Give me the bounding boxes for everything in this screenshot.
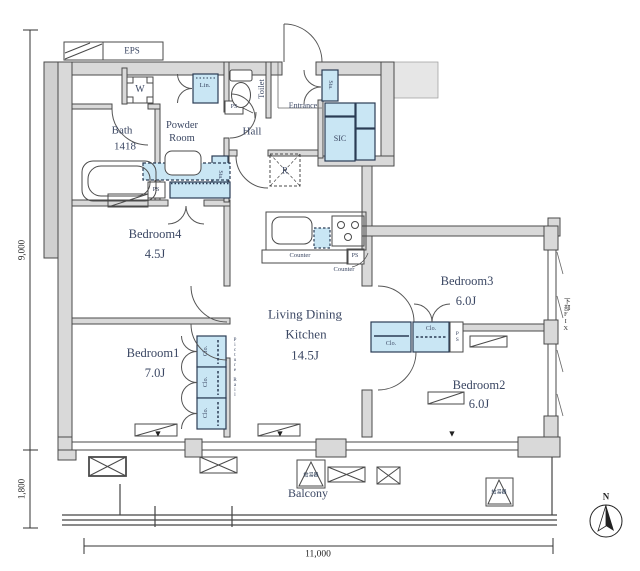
dimension-bottom: 11,000 — [305, 550, 331, 560]
balcony-label: Balcony — [288, 487, 328, 499]
powder-room-label-1: Powder — [166, 121, 198, 132]
hall-label: Hall — [243, 127, 262, 138]
linen-label: Lin. — [200, 83, 211, 90]
ps-label-kitchen: PS — [352, 253, 359, 259]
wash-basin — [165, 151, 201, 175]
closet-label-5: Clo. — [426, 326, 436, 332]
stove — [332, 216, 364, 246]
bedroom3-size: 6.0J — [456, 295, 477, 308]
exterior-alcove — [394, 62, 438, 98]
bath-size-label: 1418 — [114, 142, 136, 153]
floor-plan: EPS W Lin. Toilet PS Entrance Sta. SIC H… — [0, 0, 640, 571]
dishwasher — [314, 228, 330, 248]
fridge-label: R — [282, 167, 288, 176]
closet-label-3: Clo. — [203, 408, 209, 418]
kitchen-sink — [272, 217, 312, 244]
storage-label-powder: Sta. — [217, 170, 223, 179]
ps-label-bedroom3: PS — [454, 331, 460, 343]
vanity-cabinet — [170, 182, 230, 198]
counter-label-2: Counter — [334, 267, 355, 274]
hatch-line — [65, 44, 102, 59]
toilet-label: Toilet — [257, 79, 266, 99]
eps-label: EPS — [124, 47, 140, 56]
washer-label: W — [135, 85, 144, 95]
window-marker-3: ▼ — [448, 430, 457, 439]
dimension-left-main: 9,000 — [18, 240, 27, 260]
closet-label-1: Clo. — [203, 346, 209, 356]
bedroom4-size: 4.5J — [145, 248, 166, 261]
ldk-name-2: Kitchen — [285, 328, 326, 341]
compass — [590, 505, 622, 537]
north-label: N — [603, 493, 610, 502]
bedroom2-size: 6.0J — [469, 398, 490, 411]
sic-cell — [356, 103, 375, 128]
ps-label-toilet: PS — [231, 104, 238, 110]
window-marker-2: ▼ — [276, 430, 285, 439]
window-marker-1: ▼ — [154, 430, 163, 439]
sic-cell — [356, 129, 375, 160]
sic-cell — [325, 103, 355, 116]
dimension-left-balcony: 1,800 — [18, 479, 27, 499]
lower-fix-label: 下部FIX — [562, 298, 569, 332]
bedroom4-name: Bedroom4 — [129, 228, 182, 241]
ldk-name-1: Living Dining — [268, 308, 342, 321]
bathtub-inner — [88, 166, 150, 196]
ldk-size: 14.5J — [291, 349, 319, 362]
closet-label-4: Clo. — [386, 341, 396, 347]
water-heater-label-1: 給湯器 — [303, 474, 318, 479]
counter-label-1: Counter — [290, 253, 311, 260]
bedroom3-name: Bedroom3 — [441, 275, 494, 288]
toilet-tank — [230, 70, 252, 81]
closet-label-2: Clo. — [203, 377, 209, 387]
bedroom1-name: Bedroom1 — [127, 347, 180, 360]
picture-rail-label: Picture Rail — [233, 338, 238, 398]
powder-room-label-2: Room — [169, 134, 195, 145]
sic-label: SIC — [334, 135, 346, 143]
closet-bedroom1 — [197, 367, 226, 398]
entrance-label: Entrance — [289, 102, 317, 110]
bedroom1-size: 7.0J — [145, 367, 166, 380]
storage-label-entrance: Sta. — [327, 80, 333, 89]
hatch-line — [65, 43, 90, 53]
closet-bedroom1 — [197, 398, 226, 429]
bedroom2-name: Bedroom2 — [453, 379, 506, 392]
closet-bedroom1 — [197, 336, 226, 367]
water-heater-label-2: 給湯器 — [491, 491, 506, 496]
closet-bedroom2 — [371, 322, 411, 352]
ps-label-powder: PS — [153, 187, 160, 193]
bath-label: Bath — [112, 126, 133, 137]
